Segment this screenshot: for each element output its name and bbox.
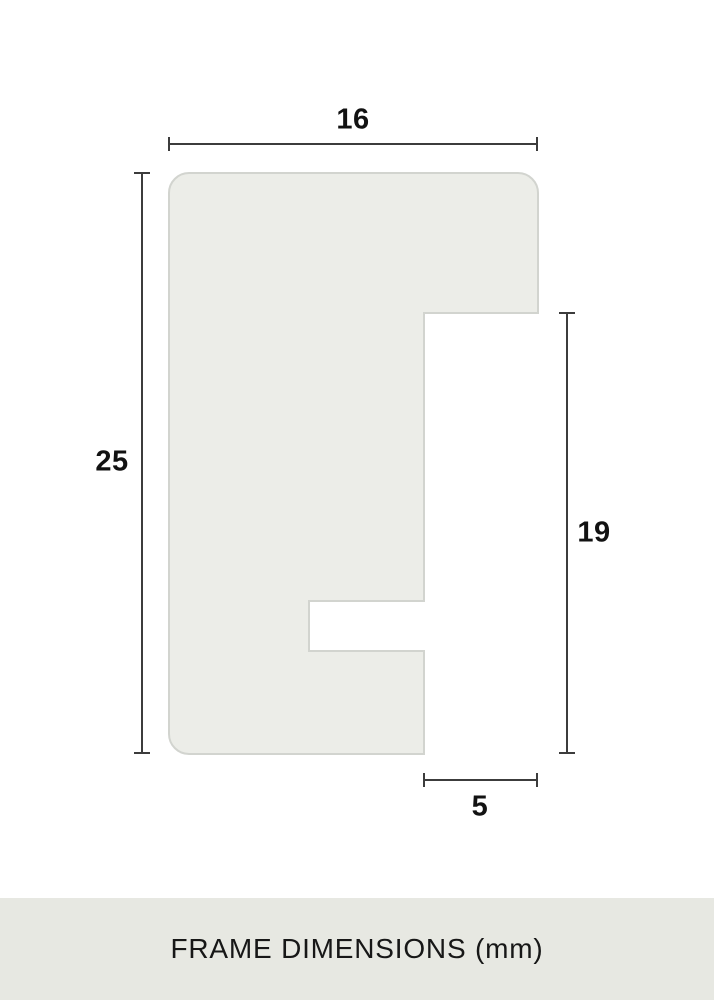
dim-label-bottom-width: 5 bbox=[472, 793, 489, 822]
dim-line-bottom-width bbox=[424, 773, 537, 787]
dim-label-right-height: 19 bbox=[577, 519, 610, 548]
dim-label-left-height: 25 bbox=[95, 448, 128, 477]
dim-line-right-height bbox=[559, 313, 575, 753]
footer-bar: FRAME DIMENSIONS (mm) bbox=[0, 898, 714, 1000]
footer-title: FRAME DIMENSIONS (mm) bbox=[170, 933, 543, 965]
dim-line-left-height bbox=[134, 173, 150, 753]
dim-line-top-width bbox=[169, 137, 537, 151]
diagram-canvas bbox=[0, 0, 714, 1000]
frame-profile-shape bbox=[169, 173, 538, 754]
frame-dimension-diagram: 16 25 19 5 FRAME DIMENSIONS (mm) bbox=[0, 0, 714, 1000]
dim-label-top-width: 16 bbox=[336, 106, 369, 135]
